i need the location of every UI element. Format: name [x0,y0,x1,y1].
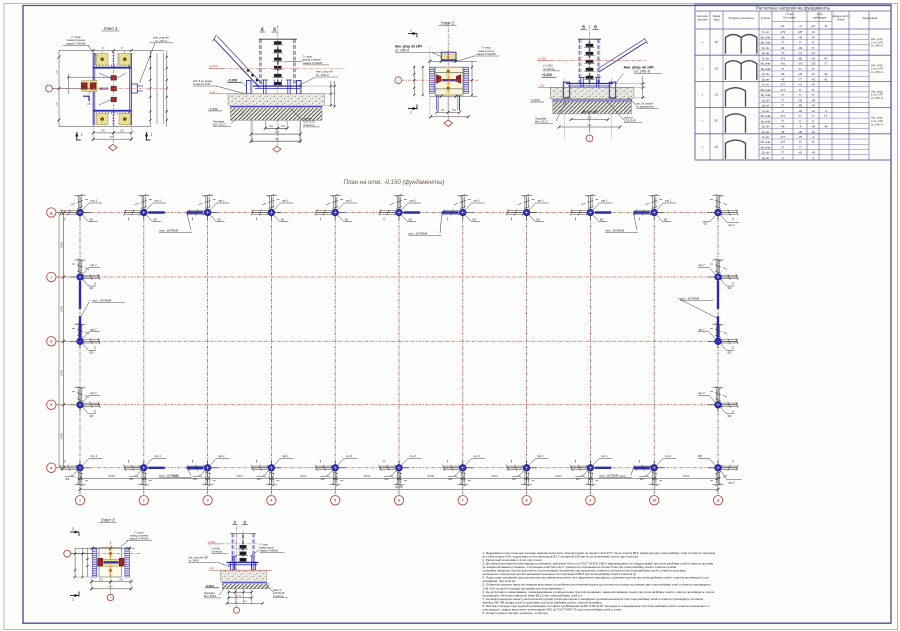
svg-text:6000: 6000 [109,474,116,478]
svg-text:-0,300: -0,300 [205,584,214,588]
svg-text:77: 77 [799,88,802,92]
svg-text:-45: -45 [811,125,815,129]
svg-text:тр 2: тр 2 [698,391,705,395]
svg-text:Б1: Б1 [715,40,719,44]
svg-text:8: 8 [526,499,528,503]
svg-text:6000: 6000 [59,369,63,376]
svg-text:-41: -41 [811,56,815,60]
svg-text:77: 77 [824,62,827,66]
svg-text:-175: -175 [810,62,816,66]
svg-text:тип. 1КТФМ8: тип. 1КТФМ8 [159,229,179,233]
svg-text:77: 77 [799,140,802,144]
svg-text:-47: -47 [811,35,815,39]
svg-text:500: 500 [110,136,115,139]
svg-text:С.ф: С.ф [539,83,545,87]
svg-text:-71: -71 [798,51,802,55]
svg-text:-47: -47 [824,56,828,60]
svg-text:Б2: Б2 [715,145,719,149]
svg-text:Qy, кН: Qy, кН [762,77,770,81]
svg-text:-49: -49 [798,98,802,102]
svg-text:-173: -173 [780,56,786,60]
svg-text:б: б [594,25,597,30]
svg-text:6000: 6000 [619,474,626,478]
svg-text:N, кН: N, кН [762,30,768,34]
svg-text:Mx, кНм: Mx, кНм [761,114,771,118]
svg-text:по месту: по месту [273,595,284,598]
svg-text:б: б [261,27,264,32]
svg-text:77: 77 [781,104,784,108]
svg-text:тр 1: тр 1 [91,454,98,458]
svg-text:6000: 6000 [364,474,371,478]
svg-text:сп. 245−6: сп. 245−6 [634,70,650,74]
svg-text:Анк. упор: Анк. упор [871,89,883,93]
svg-text:N пр: N пр [817,12,823,16]
svg-text:Ф1: Ф1 [536,218,540,222]
svg-text:Ф3: Ф3 [321,477,325,481]
svg-text:тр 1: тр 1 [218,199,225,203]
svg-text:сп. 245−6: сп. 245−6 [871,44,883,48]
svg-text:Ф1: Ф1 [664,218,668,222]
svg-text:сп. 245-6: сп. 245-6 [189,559,200,562]
svg-text:-45: -45 [798,109,802,113]
svg-text:Марка: Марка [713,14,721,18]
svg-text:Анк. упор: Анк. упор [871,37,883,41]
svg-text:Qx, кН: Qx, кН [762,46,770,50]
svg-text:+M: +M [781,24,785,28]
svg-text:6000: 6000 [300,474,307,478]
svg-text:77: 77 [812,67,815,71]
svg-text:Несущая: Несущая [697,14,708,18]
svg-text:Ф3: Ф3 [640,477,644,481]
svg-text:тр 1: тр 1 [473,454,480,458]
svg-text:Ф3: Ф3 [66,477,70,481]
svg-text:Ф1: Ф1 [345,218,349,222]
svg-text:−M: −M [798,24,802,28]
svg-text:Ф1: Ф1 [217,218,221,222]
svg-text:-49: -49 [798,46,802,50]
svg-text:Ф2: Ф2 [90,414,94,418]
svg-text:Qy, кН: Qy, кН [762,156,770,160]
svg-text:77: 77 [812,93,815,97]
svg-text:Обмер: Обмер [837,18,845,21]
svg-text:Анк. упор: Анк. упор [871,116,883,120]
svg-text:1: 1 [79,499,81,503]
svg-text:-75: -75 [798,135,802,139]
svg-text:тр 1: тр 1 [601,199,608,203]
svg-text:(Сочетание: (Сочетание [783,17,796,20]
svg-text:77: 77 [812,140,815,144]
svg-text:тр 1: тр 1 [665,199,672,203]
svg-text:60000: 60000 [395,485,403,489]
svg-text:бет. В12,5: бет. В12,5 [213,124,226,127]
svg-text:тр 2: тр 2 [728,480,735,484]
svg-text:Ф1: Ф1 [153,218,157,222]
svg-text:-41: -41 [811,130,815,134]
svg-text:77: 77 [799,93,802,97]
svg-text:2 шт. 14П: 2 шт. 14П [871,40,883,44]
svg-text:Ф1: Ф1 [281,218,285,222]
svg-text:-41: -41 [798,83,802,87]
svg-text:−0,200: −0,200 [542,73,552,77]
svg-text:тр 1: тр 1 [665,454,672,458]
svg-text:-177: -177 [780,88,786,92]
svg-text:-47: -47 [811,72,815,76]
svg-text:Анк. упор нб: Анк. упор нб [153,35,169,39]
svg-text:Mx, кНм: Mx, кНм [761,88,771,92]
svg-text:1: 1 [81,133,83,137]
svg-text:-177: -177 [780,135,786,139]
svg-text:сп. 245−6: сп. 245−6 [316,73,329,77]
svg-text:6000: 6000 [59,433,63,440]
svg-text:-43: -43 [811,77,815,81]
svg-text:-187: -187 [797,30,803,34]
svg-text:11: 11 [716,499,720,503]
svg-text:План на отм. -0,150 (фундамент: План на отм. -0,150 (фундаменты) [344,180,445,186]
svg-text:4: 4 [270,499,272,503]
svg-text:77: 77 [824,114,827,118]
svg-text:-175: -175 [797,62,803,66]
svg-text:-41: -41 [811,109,815,113]
svg-text:77: 77 [812,114,815,118]
svg-text:сп. 245−6: сп. 245−6 [155,39,167,43]
svg-text:Qx, кН: Qx, кН [762,72,770,76]
svg-text:Ф3: Ф3 [385,477,389,481]
svg-text:Ф3: Ф3 [698,454,702,458]
svg-text:-58: -58 [781,35,785,39]
svg-text:-77: -77 [781,51,785,55]
svg-text:N, кН: N, кН [762,83,768,87]
svg-text:2: 2 [71,598,74,602]
svg-text:-41: -41 [811,30,815,34]
svg-text:Анк. упор: Анк. упор [871,63,883,67]
svg-text:My, кНм: My, кНм [761,93,771,97]
svg-text:77: 77 [781,151,784,155]
svg-text:N, кН: N, кН [762,109,768,113]
svg-text:Ф1: Ф1 [600,218,604,222]
svg-text:1: 1 [151,133,153,137]
svg-text:-47: -47 [811,83,815,87]
svg-text:Qy, кН: Qy, кН [762,130,770,134]
svg-text:б: б [273,27,276,32]
svg-text:Узел 2: Узел 2 [441,21,455,26]
svg-text:сп. 245−6: сп. 245−6 [871,96,883,100]
svg-text:9: 9 [589,499,591,503]
svg-text:250: 250 [120,130,125,133]
svg-text:сп. 245−6: сп. 245−6 [395,49,409,53]
svg-text:тр 2: тр 2 [698,263,705,267]
svg-text:6000: 6000 [59,305,63,312]
svg-text:тр 2: тр 2 [728,223,735,227]
svg-text:My, кНм: My, кНм [761,119,771,123]
svg-text:-77: -77 [798,77,802,81]
svg-text:Б1: Б1 [715,66,719,70]
svg-text:тр 1: тр 1 [346,454,353,458]
svg-text:-45: -45 [798,130,802,134]
svg-text:-43: -43 [811,151,815,155]
svg-text:N max: N max [785,12,794,16]
svg-text:2 шт. 14П: 2 шт. 14П [871,67,883,71]
svg-text:N, кН: N, кН [762,135,768,139]
svg-text:−0,300: −0,300 [530,98,540,102]
svg-text:по месту: по месту [212,551,223,554]
svg-text:-43: -43 [798,151,802,155]
svg-text:-49: -49 [781,72,785,76]
svg-text:тр 1: тр 1 [537,454,544,458]
svg-text:77: 77 [781,41,784,45]
svg-text:Qx, кН: Qx, кН [762,98,770,102]
svg-text:-43: -43 [824,72,828,76]
svg-text:Узел 1: Узел 1 [104,26,118,31]
svg-text:по фрагменту: по фрагменту [636,106,654,109]
svg-text:Ф1: Ф1 [472,218,476,222]
svg-text:1СВ 35.35: 1СВ 35.35 [624,120,636,123]
svg-text:0,000: 0,000 [539,57,547,61]
svg-text:250: 250 [101,130,106,133]
svg-text:-85: -85 [798,104,802,108]
svg-text:по месту: по месту [303,124,315,127]
svg-text:-45: -45 [824,125,828,129]
svg-text:77: 77 [799,67,802,71]
svg-text:1: 1 [410,29,412,33]
svg-text:My, кНм: My, кНм [761,146,771,150]
svg-text:My, кНм: My, кНм [761,67,771,71]
svg-text:сп. 245−6: сп. 245−6 [871,122,883,126]
svg-text:тр 1: тр 1 [410,454,417,458]
svg-text:тип. 1КТФМ8: тип. 1КТФМ8 [599,474,619,478]
svg-text:-173: -173 [780,30,786,34]
svg-text:−M: −M [824,24,828,28]
svg-text:-41: -41 [824,77,828,81]
svg-text:-43: -43 [811,104,815,108]
svg-text:по месту: по месту [543,68,555,71]
svg-text:77: 77 [799,146,802,150]
svg-text:тр 2: тр 2 [90,328,97,332]
svg-text:тр 1: тр 1 [154,199,161,203]
svg-text:77: 77 [781,67,784,71]
svg-text:0,000: 0,000 [208,540,216,544]
svg-text:77: 77 [812,41,815,45]
svg-text:-177: -177 [780,114,786,118]
svg-text:N, кН: N, кН [762,56,768,60]
svg-text:сварка 17х40х82: сварка 17х40х82 [260,549,279,552]
svg-text:б: б [582,25,585,30]
svg-text:Примечание: Примечание [862,16,878,20]
svg-text:2: 2 [71,527,74,531]
svg-text:7: 7 [462,499,464,503]
svg-text:Б2: Б2 [715,93,719,97]
svg-text:+M: +M [811,24,815,28]
svg-text:Ф3: Ф3 [512,477,516,481]
svg-text:77: 77 [812,119,815,123]
svg-text:базы: базы [714,17,720,21]
svg-text:Ф2: Ф2 [728,286,732,290]
svg-text:Ф3: Ф3 [129,477,133,481]
svg-text:тр 2: тр 2 [90,263,97,267]
svg-text:-141: -141 [780,62,786,66]
svg-text:My, кНм: My, кНм [761,41,771,45]
svg-text:тип. 1КТФМ8: тип. 1КТФМ8 [408,232,428,236]
svg-text:77: 77 [799,41,802,45]
svg-text:-49: -49 [811,98,815,102]
svg-text:тип. 1КТФМ8: тип. 1КТФМ8 [680,297,700,301]
svg-text:77: 77 [781,93,784,97]
svg-text:Ф3: Ф3 [193,477,197,481]
svg-text:77: 77 [812,88,815,92]
svg-text:Ф3: Ф3 [448,477,452,481]
svg-text:-47: -47 [781,77,785,81]
svg-text:77: 77 [812,46,815,50]
svg-text:С.ф: С.ф [209,567,214,570]
svg-text:77: 77 [799,119,802,123]
svg-text:Ф1: Ф1 [704,222,708,226]
svg-text:-45: -45 [781,130,785,134]
svg-text:5: 5 [334,499,336,503]
svg-text:-49: -49 [781,125,785,129]
svg-text:Mx, кНм: Mx, кНм [761,35,771,39]
svg-text:комбинации: комбинации [813,17,827,20]
svg-text:6000: 6000 [555,474,562,478]
svg-text:Ф3: Ф3 [576,477,580,481]
svg-text:Qx, кН: Qx, кН [762,125,770,129]
svg-text:тр 1: тр 1 [601,454,608,458]
svg-text:НВ1Ф: НВ1Ф [99,87,108,91]
svg-text:3: 3 [207,499,209,503]
svg-text:тр 1: тр 1 [410,199,417,203]
svg-text:-45: -45 [798,72,802,76]
svg-text:-49: -49 [798,35,802,39]
svg-text:-177: -177 [780,140,786,144]
svg-text:сварка 17х40х82: сварка 17х40х82 [476,53,496,56]
svg-text:4. Подготовку оснований под мо: 4. Подготовку оснований под монолитные р… [483,576,710,580]
svg-text:−0,300: −0,300 [208,107,218,111]
svg-text:колонна: колонна [698,18,708,21]
svg-text:-47: -47 [811,51,815,55]
svg-text:тр 1: тр 1 [282,199,289,203]
svg-text:С.ф: С.ф [210,90,216,94]
svg-text:6000: 6000 [683,474,690,478]
svg-text:Ф2: Ф2 [728,351,732,355]
svg-text:бет. В12,5: бет. В12,5 [535,121,548,124]
svg-text:тип. 1КТФМ8: тип. 1КТФМ8 [605,229,625,233]
svg-text:тр 2: тр 2 [90,391,97,395]
svg-text:Ф2: Ф2 [728,414,732,418]
svg-text:Ф1: Ф1 [90,218,94,222]
svg-text:тр 1: тр 1 [154,454,161,458]
svg-text:Ф3: Ф3 [257,477,261,481]
svg-text:по месту 2СФ: по месту 2СФ [193,83,210,86]
svg-text:0,000: 0,000 [210,64,218,68]
svg-text:Qy, кН: Qy, кН [762,104,770,108]
svg-text:77: 77 [781,98,784,102]
svg-text:Б2: Б2 [715,119,719,123]
svg-text:Узел 3: Узел 3 [101,518,115,523]
svg-text:сварка 17х40х82: сварка 17х40х82 [303,62,323,65]
svg-text:сварка 17х40х82: сварка 17х40х82 [66,42,86,45]
svg-text:2 шт. 14П: 2 шт. 14П [871,119,883,123]
svg-text:бет. В12,5: бет. В12,5 [204,595,217,598]
svg-text:-177: -177 [780,83,786,87]
svg-text:9. Отметки даны в метрах, разм: 9. Отметки даны в метрах, размеры - в мм… [483,611,548,615]
svg-text:тр 1: тр 1 [218,454,225,458]
svg-text:6000: 6000 [491,474,498,478]
svg-text:77: 77 [781,119,784,123]
svg-text:-49: -49 [781,46,785,50]
svg-text:сварка 17х40х82: сварка 17х40х82 [129,538,149,541]
svg-text:Ф2: Ф2 [90,286,94,290]
svg-text:тр 1: тр 1 [537,199,544,203]
svg-text:тр 1: тр 1 [91,199,98,203]
svg-text:тр 2: тр 2 [698,328,705,332]
svg-text:2: 2 [143,499,145,503]
svg-text:Qy, кН: Qy, кН [762,51,770,55]
svg-text:Расчетные нагрузки на фундамен: Расчетные нагрузки на фундаменты [756,5,830,10]
svg-text:Ф1: Ф1 [409,218,413,222]
svg-text:тр 1: тр 1 [473,199,480,203]
svg-text:2 шт. 14П: 2 шт. 14П [871,93,883,97]
svg-text:6000: 6000 [172,474,179,478]
svg-text:77: 77 [799,114,802,118]
svg-text:-85: -85 [798,56,802,60]
svg-text:сп. 245−6: сп. 245−6 [871,70,883,74]
svg-text:Усилия: Усилия [761,16,770,20]
svg-text:−0,200: −0,200 [227,78,237,82]
svg-text:Mx, кНм: Mx, кНм [761,140,771,144]
svg-text:Mx, кНм: Mx, кНм [761,62,771,66]
svg-text:77: 77 [781,146,784,150]
svg-text:10: 10 [652,499,656,503]
svg-text:Профиль элемента: Профиль элемента [728,16,754,20]
svg-text:тип. 1КТФМ8: тип. 1КТФМ8 [92,299,112,303]
svg-text:Ф2: Ф2 [90,351,94,355]
svg-text:Qx, кН: Qx, кН [762,151,770,155]
svg-text:6000: 6000 [59,241,63,248]
svg-text:тр 1: тр 1 [282,454,289,458]
svg-text:6000: 6000 [236,474,243,478]
svg-text:1: 1 [410,111,412,115]
svg-text:тр 1: тр 1 [346,199,353,203]
svg-text:6: 6 [398,499,400,503]
svg-text:6000: 6000 [428,474,435,478]
